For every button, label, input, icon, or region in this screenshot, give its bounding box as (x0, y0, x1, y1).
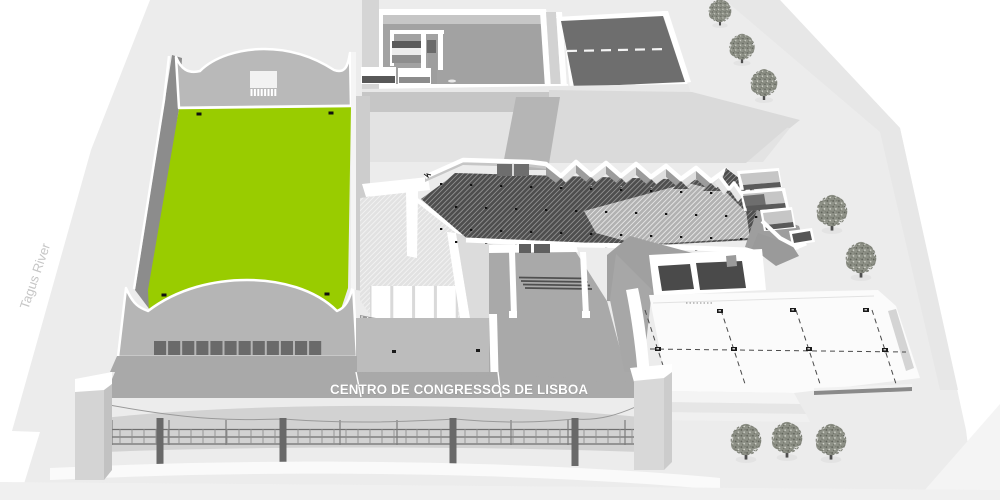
svg-text:CENTRO DE CONGRESSOS DE LISBOA: CENTRO DE CONGRESSOS DE LISBOA (330, 382, 588, 397)
